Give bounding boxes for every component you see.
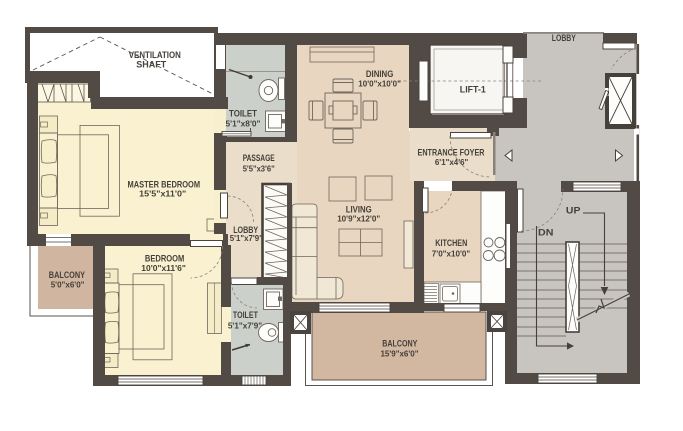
svg-text:5'1"x7'9": 5'1"x7'9" (228, 320, 262, 330)
svg-text:5'5"x3'6": 5'5"x3'6" (243, 163, 275, 173)
svg-text:UP: UP (566, 206, 581, 216)
svg-text:TOILET: TOILET (229, 109, 257, 119)
svg-text:BALCONY: BALCONY (49, 270, 85, 280)
svg-text:10'9"x12'0": 10'9"x12'0" (337, 214, 380, 224)
svg-text:DN: DN (538, 228, 553, 238)
svg-text:5'0"x6'0": 5'0"x6'0" (51, 280, 85, 290)
svg-text:BEDROOM: BEDROOM (145, 254, 184, 264)
svg-text:ENTRANCE FOYER: ENTRANCE FOYER (418, 148, 485, 158)
svg-text:15'5"x11'0": 15'5"x11'0" (139, 189, 186, 199)
svg-text:PASSAGE: PASSAGE (243, 153, 275, 163)
svg-text:BALCONY: BALCONY (382, 339, 417, 349)
svg-text:SHAFT: SHAFT (136, 60, 166, 70)
svg-text:5'1"x7'9": 5'1"x7'9" (230, 233, 263, 243)
svg-text:TOILET: TOILET (233, 310, 258, 320)
svg-text:6'1"x4'6": 6'1"x4'6" (435, 157, 468, 167)
svg-text:LOBBY: LOBBY (552, 33, 576, 43)
svg-text:KITCHEN: KITCHEN (435, 238, 467, 248)
svg-text:15'9"x6'0": 15'9"x6'0" (380, 348, 418, 358)
svg-text:7'0"x10'0": 7'0"x10'0" (432, 249, 470, 259)
svg-text:LIFT-1: LIFT-1 (460, 85, 486, 95)
svg-text:DINING: DINING (366, 69, 394, 79)
svg-text:VENTILATION: VENTILATION (129, 50, 181, 60)
svg-text:10'0"x10'0": 10'0"x10'0" (358, 79, 401, 89)
svg-text:10'0"x11'6": 10'0"x11'6" (141, 263, 186, 273)
svg-text:5'1"x8'0": 5'1"x8'0" (226, 119, 261, 129)
